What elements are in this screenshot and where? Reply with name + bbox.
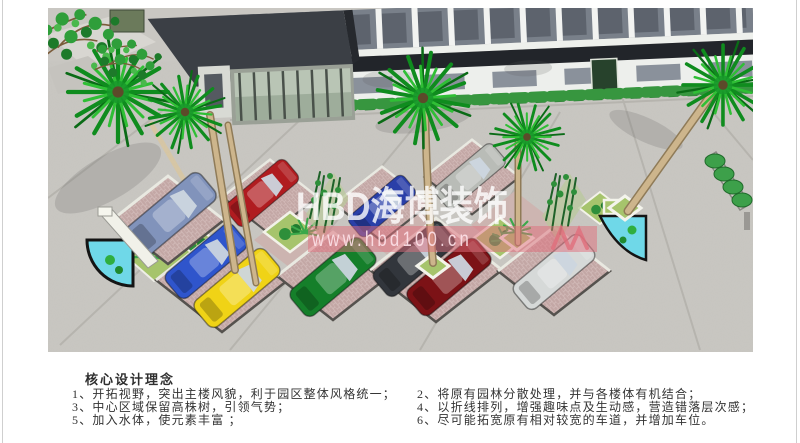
notes-left-column: 1、开拓视野，突出主楼风貌，利于园区整体风格统一； 3、中心区域保留高株树，引领…	[72, 388, 417, 427]
page-right-border	[796, 0, 797, 443]
site-plan-rendering: HBD海博装饰 www.hbd100.cn	[48, 8, 753, 352]
note-5: 5、加入水体，使元素丰富 ；	[72, 414, 417, 427]
note-6: 6、尽可能拓宽原有相对较宽的车道，并增加车位。	[417, 414, 772, 427]
caption-columns: 1、开拓视野，突出主楼风貌，利于园区整体风格统一； 3、中心区域保留高株树，引领…	[72, 388, 772, 427]
notes-right-column: 2、将原有园林分散处理，并与各楼体有机结合； 4、以折线排列，增强趣味点及生动感…	[417, 388, 772, 427]
watermark-url: www.hbd100.cn	[311, 228, 472, 251]
watermark-brand: HBD海博装饰	[296, 185, 508, 229]
caption-heading: 核心设计理念	[85, 369, 175, 388]
design-concept-page: HBD海博装饰 www.hbd100.cn 核心设计理念 1、开拓视野，突出主楼…	[0, 0, 800, 443]
page-left-border	[2, 0, 3, 443]
